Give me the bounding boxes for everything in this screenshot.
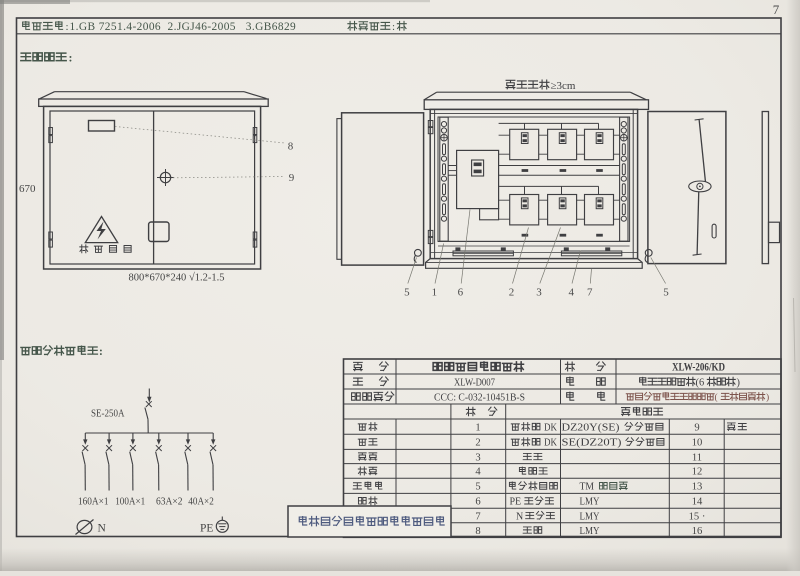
svg-text:): ) [737, 377, 740, 388]
svg-text:1.GB 7251.4-2006: 1.GB 7251.4-2006 [70, 21, 162, 33]
svg-text:7: 7 [773, 2, 780, 17]
svg-text:3: 3 [475, 452, 480, 463]
svg-text:8: 8 [475, 526, 480, 537]
svg-text:PE: PE [510, 497, 522, 508]
svg-text:2: 2 [475, 438, 480, 449]
svg-text:63A×2: 63A×2 [156, 497, 183, 508]
svg-text::: : [66, 21, 69, 33]
svg-text:TM: TM [580, 482, 595, 493]
svg-text:11: 11 [692, 452, 702, 463]
svg-text:DK: DK [544, 438, 558, 449]
svg-text:N: N [98, 523, 107, 535]
svg-text:40A×2: 40A×2 [188, 497, 214, 508]
svg-text:3: 3 [536, 287, 542, 299]
svg-text:LMY: LMY [580, 497, 601, 508]
svg-text:): ) [766, 392, 769, 403]
svg-text:12: 12 [692, 467, 703, 478]
svg-text:7: 7 [587, 287, 593, 299]
svg-text::: : [99, 346, 103, 358]
svg-text:9: 9 [289, 172, 295, 184]
svg-text:XLW-206/KD: XLW-206/KD [672, 362, 725, 374]
svg-text:3.GB6829: 3.GB6829 [246, 21, 296, 33]
svg-text:PE: PE [200, 523, 213, 535]
svg-text:9: 9 [694, 422, 699, 433]
svg-text:800*670*240 √1.2-1.5: 800*670*240 √1.2-1.5 [129, 272, 225, 284]
svg-text:N: N [516, 511, 523, 522]
svg-text:DK: DK [544, 422, 558, 433]
svg-text:4: 4 [568, 287, 574, 299]
svg-text:14: 14 [692, 497, 703, 508]
svg-text:(: ( [715, 392, 718, 403]
svg-text:SE(DZ20T): SE(DZ20T) [562, 438, 622, 449]
svg-text:DZ20Y(SE): DZ20Y(SE) [562, 422, 620, 433]
svg-text:10: 10 [692, 438, 703, 449]
svg-text:LMY: LMY [580, 526, 601, 537]
svg-text:(6: (6 [696, 377, 705, 388]
svg-text:1: 1 [432, 287, 438, 299]
svg-text:8: 8 [288, 141, 294, 153]
svg-text:15 ·: 15 · [689, 511, 706, 522]
svg-text:5: 5 [404, 287, 410, 299]
svg-text::: : [392, 21, 395, 33]
svg-text:2.JGJ46-2005: 2.JGJ46-2005 [168, 21, 236, 33]
svg-text:7: 7 [475, 511, 480, 522]
svg-text:160A×1: 160A×1 [78, 497, 109, 508]
svg-text:5: 5 [663, 287, 669, 299]
svg-text:1: 1 [475, 422, 480, 433]
svg-text:SE-250A: SE-250A [91, 409, 125, 420]
svg-text:6: 6 [475, 497, 480, 508]
svg-text:100A×1: 100A×1 [115, 497, 145, 508]
svg-text:4: 4 [475, 467, 481, 478]
svg-text:2: 2 [509, 287, 515, 299]
svg-text:XLW-D007: XLW-D007 [454, 377, 495, 389]
svg-text:≥3cm: ≥3cm [551, 80, 576, 92]
svg-text:5: 5 [475, 482, 480, 493]
svg-text:CCC: C-032-10451B-S: CCC: C-032-10451B-S [434, 392, 525, 404]
svg-text::: : [69, 51, 73, 65]
svg-text:16: 16 [692, 526, 703, 537]
svg-text:LMY: LMY [580, 511, 601, 522]
svg-text:670: 670 [19, 183, 36, 195]
svg-text:6: 6 [458, 287, 464, 299]
svg-text:13: 13 [692, 482, 703, 493]
